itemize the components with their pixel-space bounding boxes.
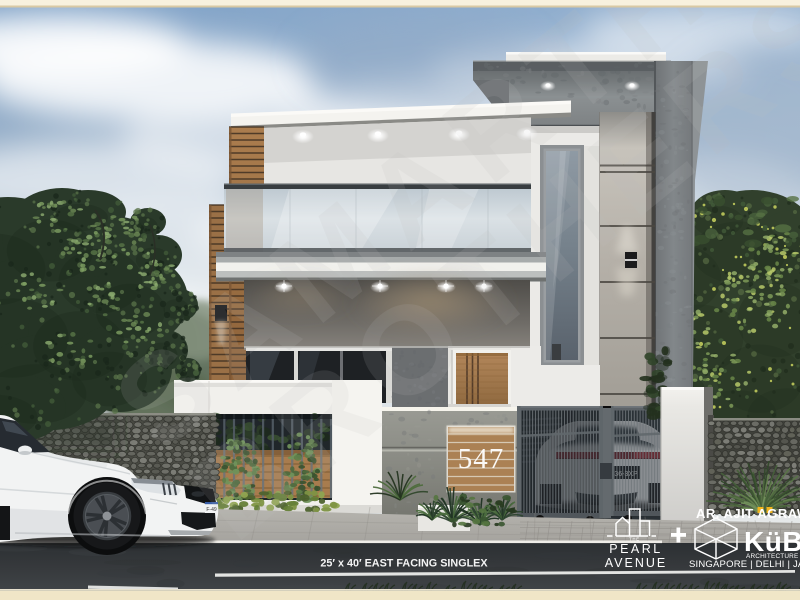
svg-text:25′ x 40′ EAST FACING SINGLEX: 25′ x 40′ EAST FACING SINGLEX bbox=[320, 558, 488, 570]
svg-text:547: 547 bbox=[458, 443, 505, 475]
svg-text:PEARL: PEARL bbox=[609, 542, 663, 556]
svg-text:AVENUE: AVENUE bbox=[605, 556, 667, 570]
svg-text:SINGAPORE | DELHI | JABALPUR: SINGAPORE | DELHI | JABALPUR bbox=[689, 559, 800, 570]
svg-text:THE: THE bbox=[629, 537, 640, 542]
svg-text:AR. AJIT AGRAWAL: AR. AJIT AGRAWAL bbox=[696, 506, 800, 521]
